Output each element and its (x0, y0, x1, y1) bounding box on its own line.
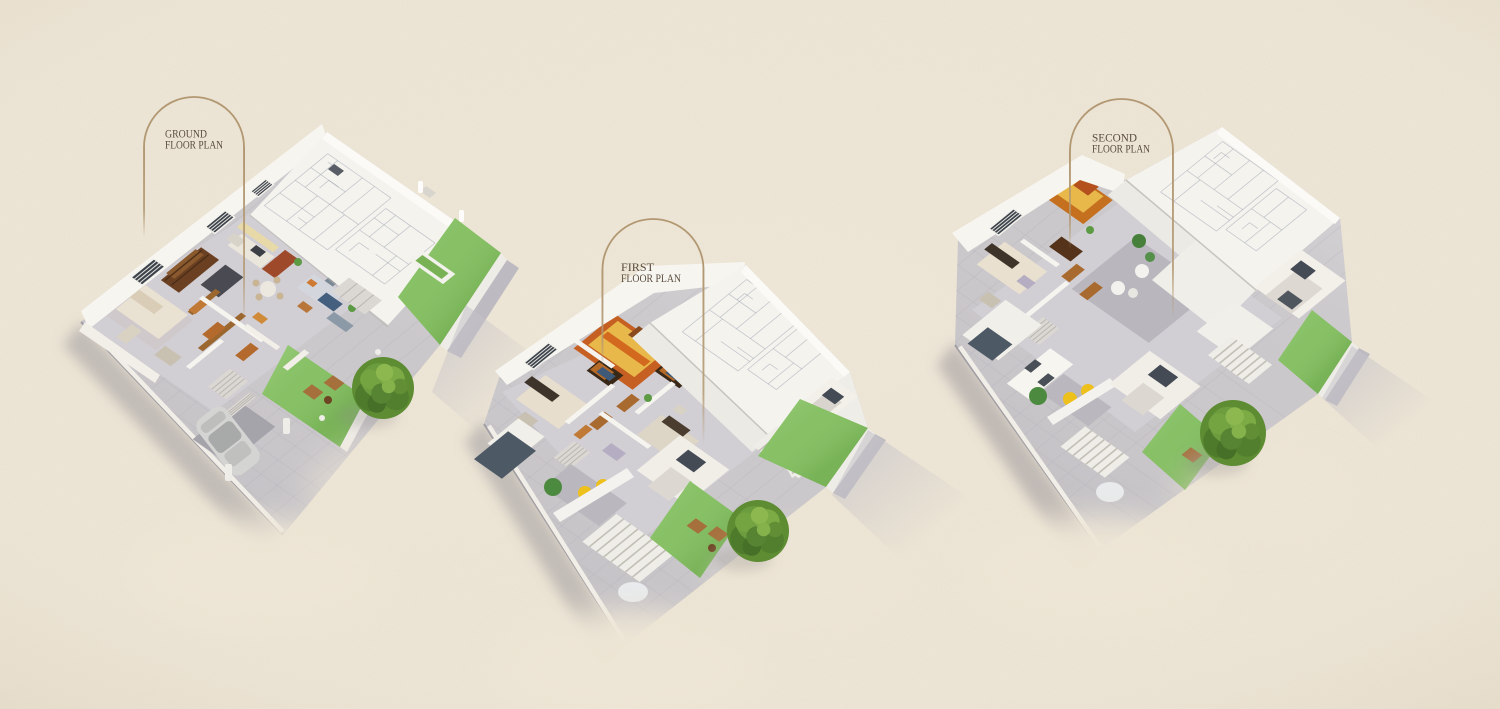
svg-text:FLOOR PLAN: FLOOR PLAN (621, 271, 681, 285)
svg-text:FLOOR PLAN: FLOOR PLAN (1092, 142, 1150, 156)
svg-text:FLOOR PLAN: FLOOR PLAN (165, 138, 223, 152)
